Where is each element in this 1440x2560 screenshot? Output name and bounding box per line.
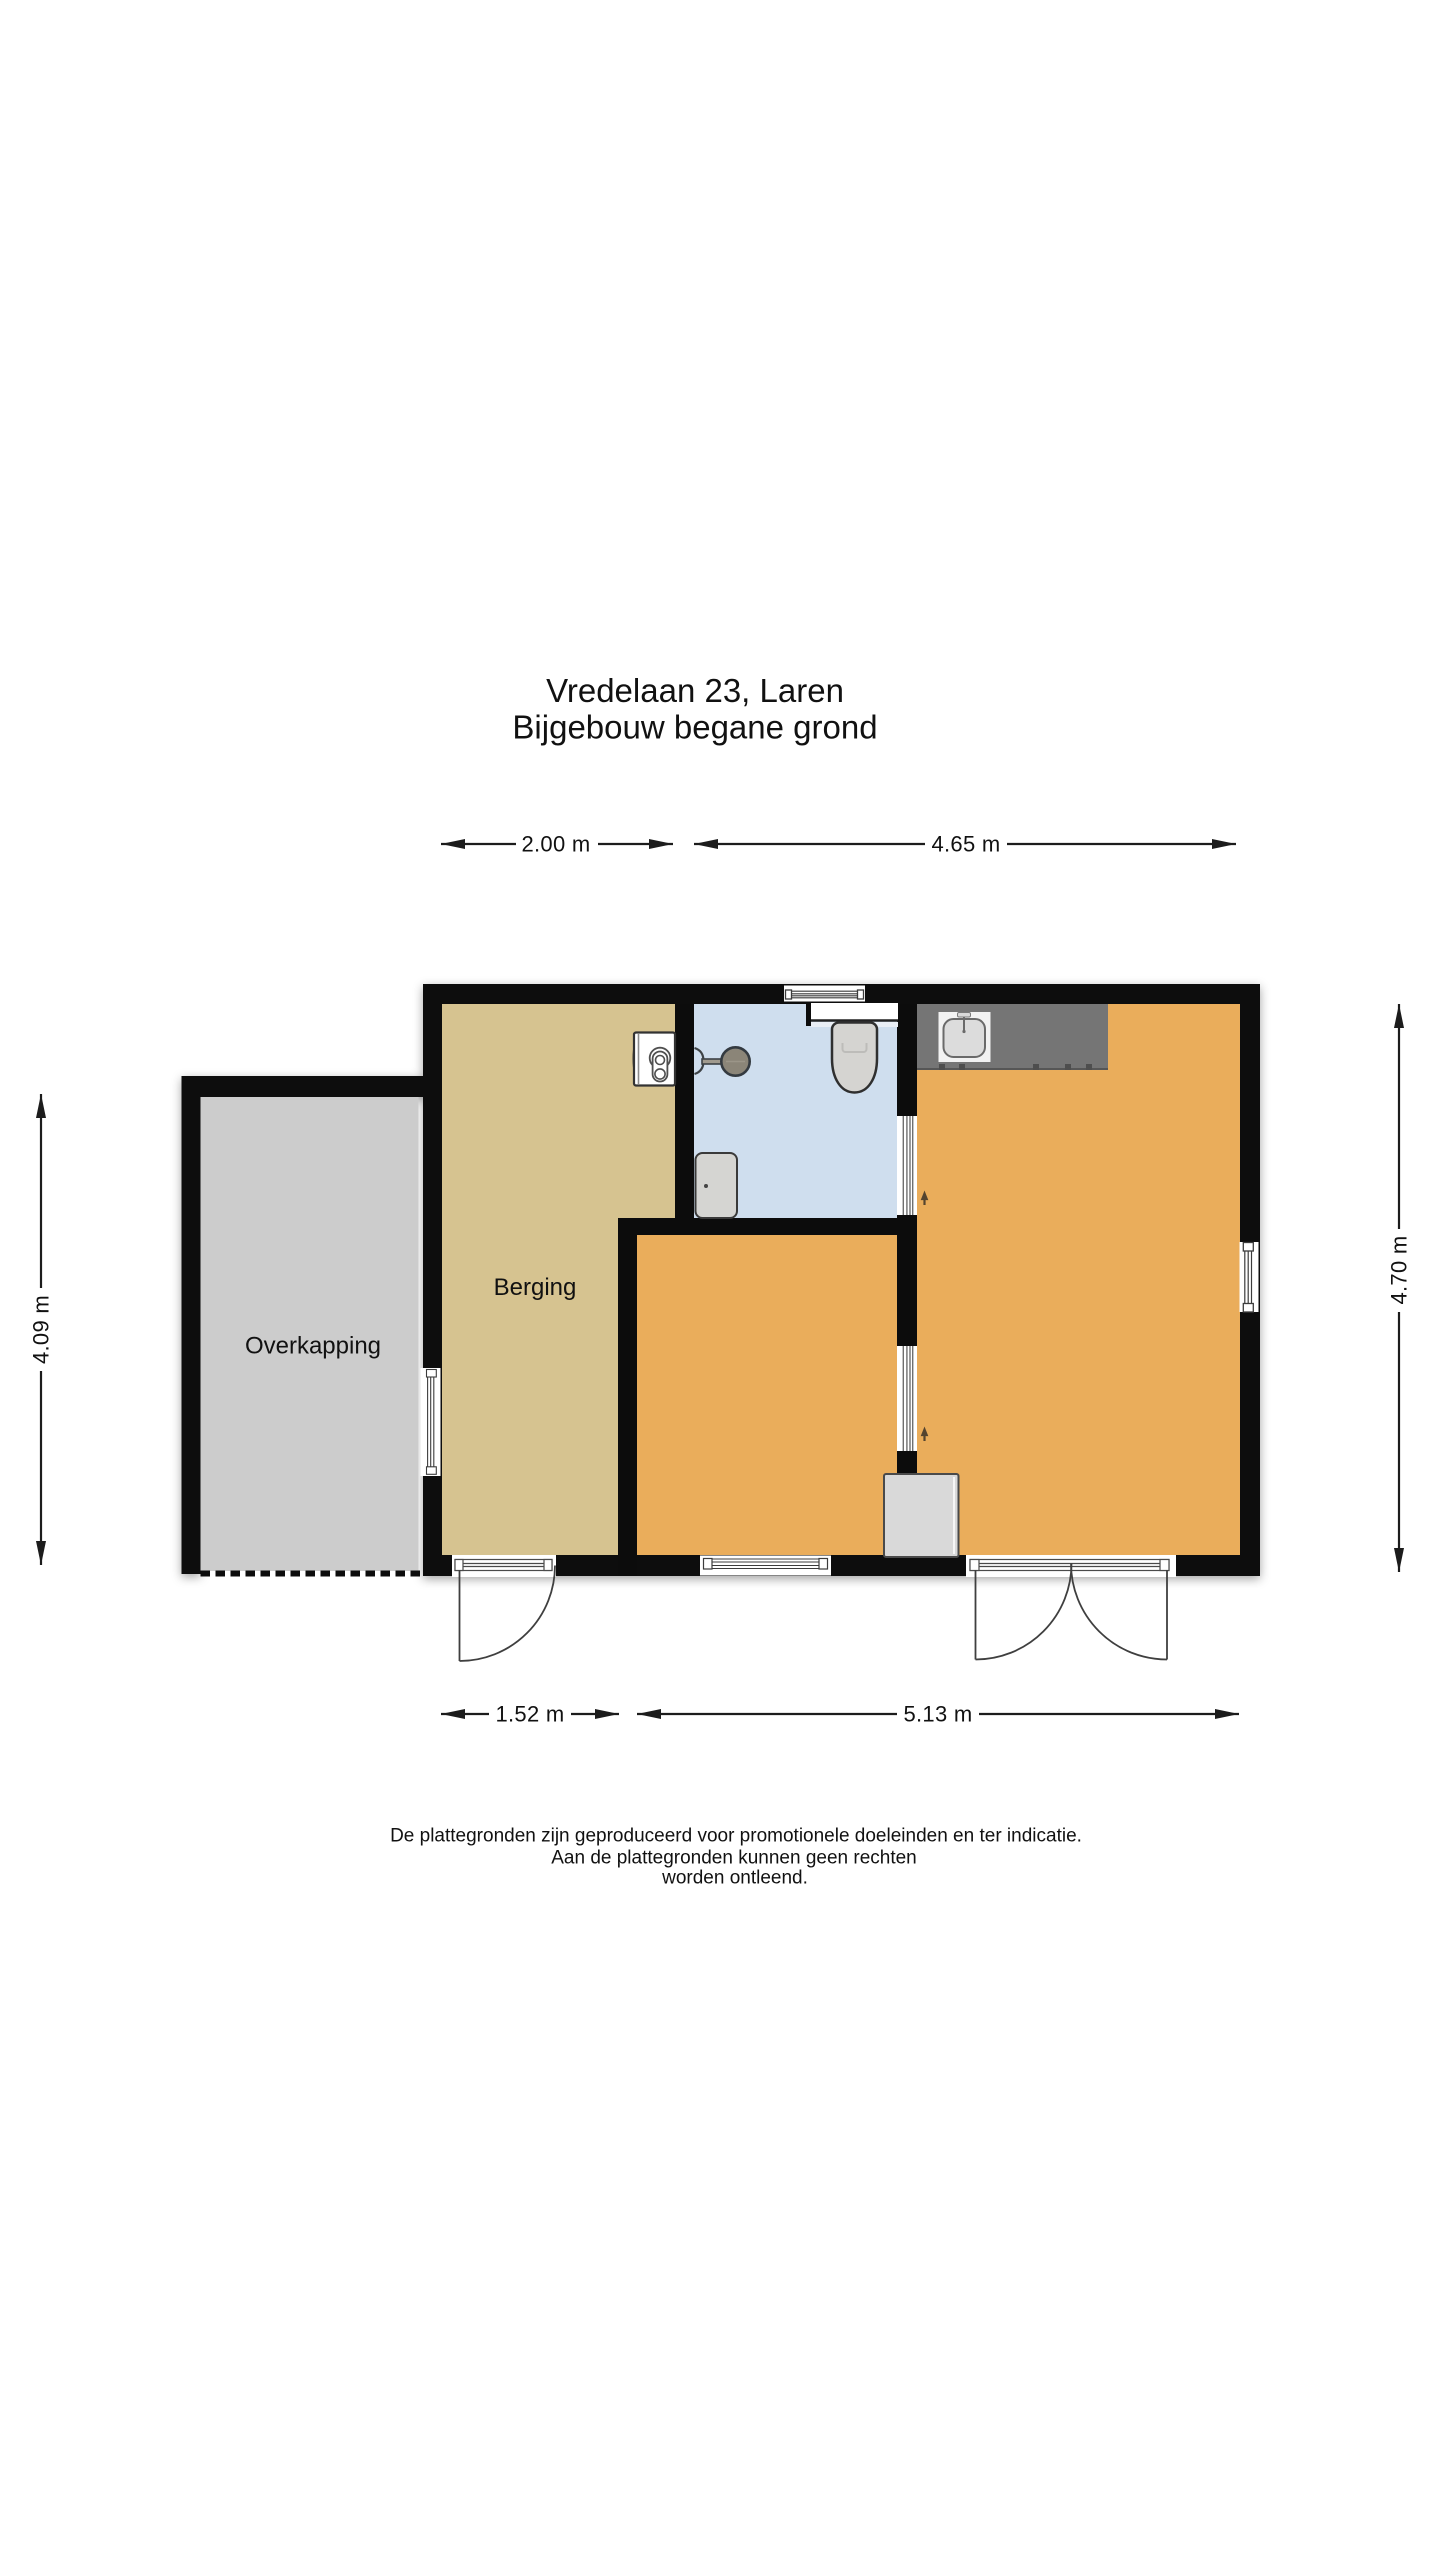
svg-text:Overkapping: Overkapping: [245, 1333, 381, 1360]
svg-text:4.65 m: 4.65 m: [931, 832, 1000, 857]
svg-text:Aan de plattegronden kunnen ge: Aan de plattegronden kunnen geen rechten: [551, 1848, 917, 1869]
svg-text:Bijgebouw begane grond: Bijgebouw begane grond: [512, 709, 877, 746]
svg-text:4.09 m: 4.09 m: [29, 1295, 54, 1364]
svg-text:4.70 m: 4.70 m: [1387, 1235, 1412, 1304]
svg-text:worden ontleend.: worden ontleend.: [661, 1868, 808, 1889]
svg-text:1.52 m: 1.52 m: [495, 1702, 564, 1727]
svg-text:Vredelaan 23, Laren: Vredelaan 23, Laren: [546, 672, 844, 709]
svg-text:2.00 m: 2.00 m: [521, 832, 590, 857]
svg-text:De plattegronden zijn geproduc: De plattegronden zijn geproduceerd voor …: [390, 1826, 1082, 1847]
svg-text:5.13 m: 5.13 m: [903, 1702, 972, 1727]
svg-text:Berging: Berging: [494, 1274, 577, 1301]
